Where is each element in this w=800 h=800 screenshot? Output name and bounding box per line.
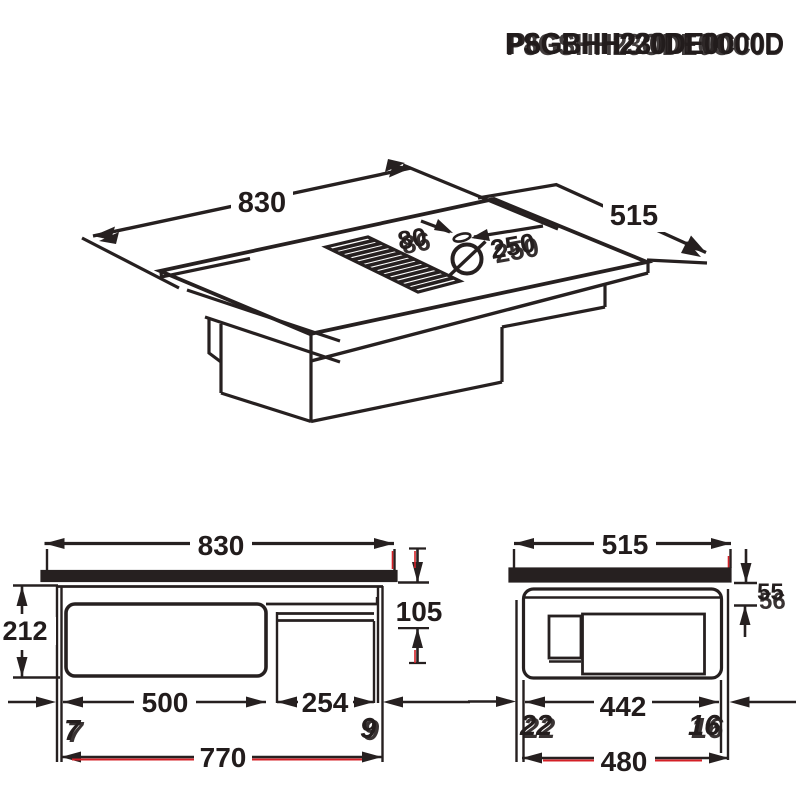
svg-text:16: 16 xyxy=(691,713,724,745)
svg-text:515: 515 xyxy=(602,529,649,560)
svg-text:770: 770 xyxy=(200,742,247,773)
svg-text:22: 22 xyxy=(522,713,555,745)
svg-text:480: 480 xyxy=(601,746,648,777)
svg-text:212: 212 xyxy=(2,616,47,646)
svg-text:105: 105 xyxy=(396,596,443,627)
svg-text:56: 56 xyxy=(759,588,786,615)
svg-text:9: 9 xyxy=(363,715,379,747)
svg-text:7: 7 xyxy=(67,717,85,749)
svg-text:830: 830 xyxy=(238,187,286,219)
svg-text:250: 250 xyxy=(492,232,542,269)
svg-text:86: 86 xyxy=(399,226,433,261)
svg-text:515: 515 xyxy=(610,200,658,232)
svg-text:500: 500 xyxy=(142,687,189,718)
svg-text:254: 254 xyxy=(302,687,349,718)
svg-text:P8GSHH23ODE0OC0D: P8GSHH23ODE0OC0D xyxy=(506,27,784,62)
svg-text:442: 442 xyxy=(600,691,647,722)
svg-text:830: 830 xyxy=(198,530,245,561)
